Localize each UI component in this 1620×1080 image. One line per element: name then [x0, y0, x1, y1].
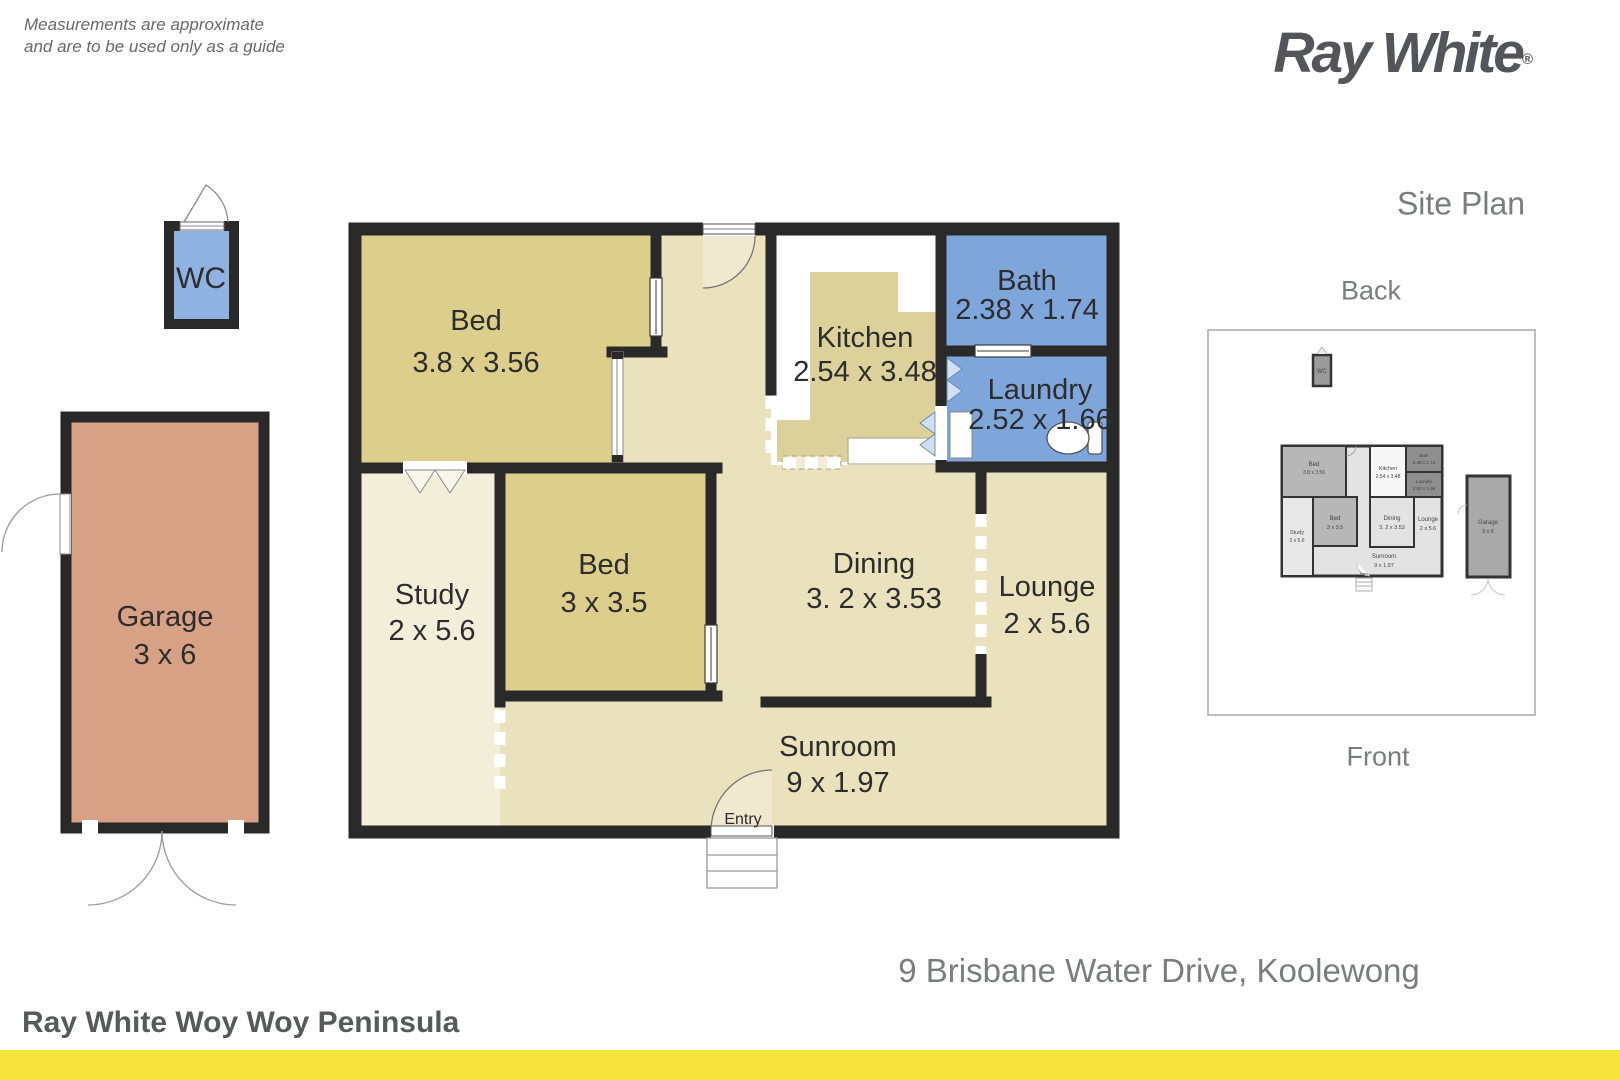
mini-bath-label: Bath — [1419, 453, 1429, 458]
site-plan-title: Site Plan — [1397, 186, 1525, 223]
laundry-dims: 2.52 x 1.66 — [968, 404, 1112, 436]
wc-label: WC — [176, 262, 226, 295]
site-plan-back-label: Back — [1341, 276, 1401, 307]
bed1-dims: 3.8 x 3.56 — [412, 347, 539, 379]
garage-door-gap — [228, 820, 244, 835]
mini-sunroom-label: Sunroom — [1372, 554, 1396, 560]
mini-bed1-dims: 3.8 x 3.56 — [1303, 470, 1325, 476]
dining-label: Dining — [833, 548, 915, 580]
kitchen-label: Kitchen — [817, 322, 914, 354]
garage-label: Garage — [117, 601, 214, 633]
mini-bath-dims: 2.38 x 1.74 — [1413, 460, 1436, 465]
mini-study-dims: 2 x 5.6 — [1289, 538, 1304, 544]
agency-name: Ray White Woy Woy Peninsula — [22, 1006, 459, 1040]
bed2-window — [705, 625, 717, 683]
kitchen-dims: 2.54 x 3.48 — [793, 356, 937, 388]
site-plan-front-label: Front — [1346, 742, 1409, 773]
sunroom-label: Sunroom — [779, 731, 897, 763]
wc-outbuilding: WC — [169, 185, 234, 324]
mini-lounge-dims: 2 x 5.6 — [1420, 526, 1437, 532]
mini-garage-dims: 3 x 6 — [1482, 529, 1494, 535]
site-plan-box: WC Entry — [1208, 330, 1535, 715]
mini-dining — [1370, 497, 1414, 547]
sunroom-dims: 9 x 1.97 — [786, 767, 889, 799]
bed1-label: Bed — [450, 305, 502, 337]
garage-door-gap — [82, 820, 98, 835]
garage-side-door-arc-icon — [2, 494, 60, 552]
mini-bed1-label: Bed — [1309, 462, 1320, 468]
study-dims: 2 x 5.6 — [388, 615, 475, 647]
lounge-label: Lounge — [999, 571, 1096, 603]
bath-label: Bath — [997, 265, 1057, 297]
mini-kitchen-label: Kitchen — [1379, 466, 1397, 472]
mini-entry-label: Entry — [1360, 572, 1368, 576]
main-house: Bed 3.8 x 3.56 Kitchen 2.54 x 3.48 Bath … — [355, 221, 1113, 888]
bath-laundry-window — [975, 345, 1031, 357]
mini-kitchen-dims: 2.54 x 3.48 — [1376, 474, 1401, 480]
mini-lounge-label: Lounge — [1418, 517, 1439, 523]
garage-dims: 3 x 6 — [134, 639, 197, 671]
laundry-door-gap — [935, 406, 947, 460]
mini-garage: Garage 3 x 6 — [1458, 476, 1510, 595]
garage-building: Garage 3 x 6 — [2, 417, 264, 905]
laundry-label: Laundry — [988, 374, 1093, 406]
mini-dining-label: Dining — [1383, 516, 1400, 522]
entry-steps — [707, 838, 777, 888]
mini-study-label: Study — [1290, 530, 1304, 536]
bath-dims: 2.38 x 1.74 — [955, 294, 1099, 326]
bed1-hall-window — [650, 278, 662, 336]
mini-laundry — [1406, 472, 1442, 497]
bed2-room — [500, 468, 711, 696]
garage-side-door-leaf — [60, 494, 70, 554]
property-address: 9 Brisbane Water Drive, Koolewong — [898, 952, 1420, 990]
bed2-dims: 3 x 3.5 — [560, 587, 647, 619]
mini-garage-label: Garage — [1478, 520, 1499, 526]
lounge-dims: 2 x 5.6 — [1003, 608, 1090, 640]
study-label: Study — [395, 579, 470, 611]
bed2-label: Bed — [578, 549, 630, 581]
study-room — [355, 468, 500, 832]
garage-door-arc-icon — [88, 831, 162, 905]
mini-sunroom-dims: 9 x 1.97 — [1374, 563, 1394, 569]
mini-study — [1282, 497, 1313, 576]
garage-door-arc-icon — [162, 831, 236, 905]
mini-house: Entry Bed 3.8 x 3.56 Kitchen 2.54 x 3.48… — [1282, 446, 1442, 591]
floorplan-svg: Bed 3.8 x 3.56 Kitchen 2.54 x 3.48 Bath … — [0, 0, 1620, 1080]
dining-dims: 3. 2 x 3.53 — [806, 583, 941, 615]
brand-yellow-bar — [0, 1050, 1620, 1080]
mini-bed2-label: Bed — [1330, 516, 1341, 522]
bed1-wardrobe-slider — [612, 352, 623, 462]
mini-bed2-dims: 3 x 3.5 — [1327, 525, 1344, 531]
floorplan-page: Measurements are approximate and are to … — [0, 0, 1620, 1080]
mini-wc-label: WC — [1317, 369, 1328, 375]
mini-laundry-dims: 2.52 x 1.66 — [1413, 486, 1436, 491]
mini-bath — [1406, 446, 1442, 472]
entry-label: Entry — [724, 811, 761, 828]
mini-laundry-label: Laundry — [1416, 479, 1433, 484]
mini-dining-dims: 3. 2 x 3.53 — [1379, 525, 1405, 531]
